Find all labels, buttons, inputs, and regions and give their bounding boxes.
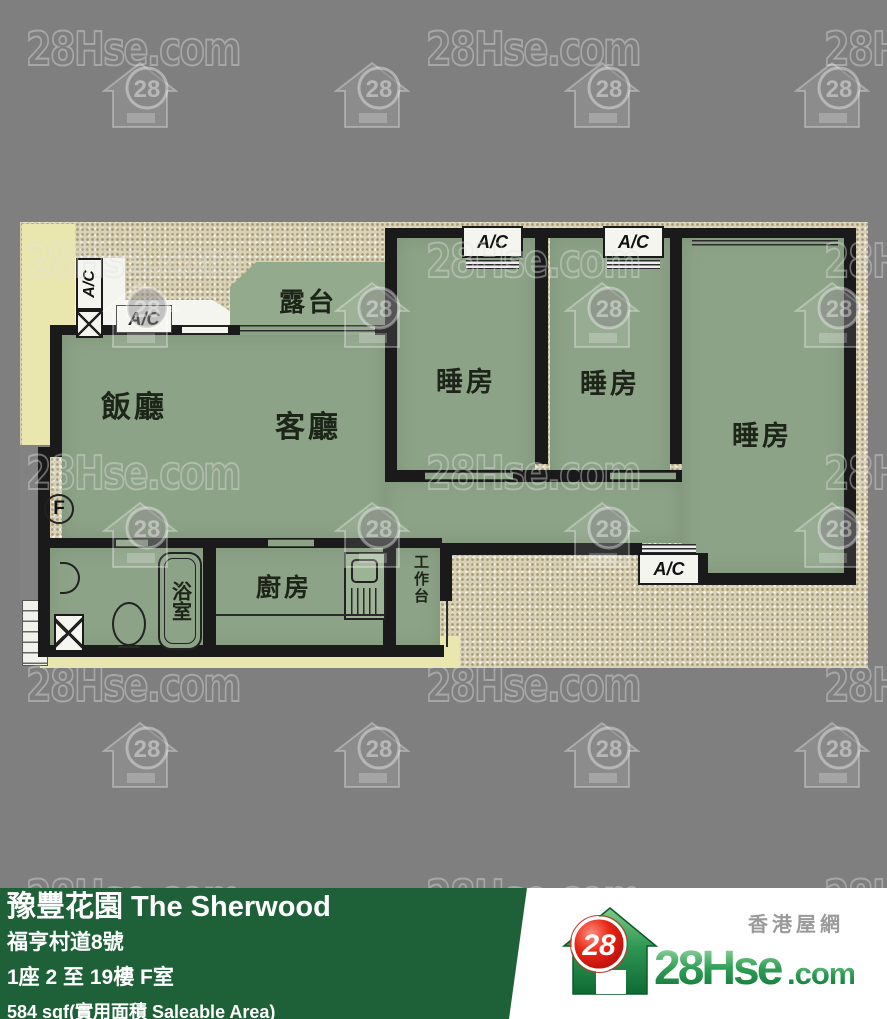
site-logo[interactable]: 香港屋網 28 <box>556 902 876 1012</box>
wall-segment <box>670 228 682 464</box>
logo-tagline: 香港屋網 <box>748 908 844 937</box>
watermark-house-icon: 28 <box>564 61 640 131</box>
watermark-text: 28Hse.com <box>824 22 887 76</box>
kitchen-label: 廚房 <box>238 568 330 604</box>
svg-text:28: 28 <box>366 76 393 103</box>
svg-text:28: 28 <box>134 736 161 763</box>
room-bedroom-2 <box>550 238 670 480</box>
floor-plan: A/C A/C A/C A/C A/C F 浴室 飯廳 客廳 睡房 睡房 睡房 … <box>20 222 868 668</box>
watermark-house-icon: 28 <box>794 721 870 791</box>
balcony-label: 露台 <box>260 282 356 319</box>
door-opening <box>268 539 314 547</box>
ac-unit-entry: A/C <box>76 258 103 310</box>
svg-text:28: 28 <box>596 76 623 103</box>
house-logo-icon: 28 <box>562 906 658 998</box>
ac-unit-entry-2: A/C <box>116 305 172 333</box>
kitchen-sink <box>344 552 386 620</box>
window <box>607 260 660 269</box>
bathroom-label: 浴室 <box>166 581 195 621</box>
kitchen-counter <box>216 614 384 616</box>
watermark-text: 28Hse.com <box>26 22 240 76</box>
living-room-label: 客廳 <box>252 402 364 446</box>
watermark-text: 28Hse.com <box>426 22 640 76</box>
pipe-duct-2 <box>54 614 84 652</box>
window <box>466 260 519 269</box>
svg-text:28: 28 <box>366 736 393 763</box>
door-opening <box>116 539 148 547</box>
room-bedroom-1 <box>397 238 535 480</box>
ac-unit-bedroom-2: A/C <box>603 226 664 258</box>
svg-text:28: 28 <box>826 76 853 103</box>
door-opening <box>425 472 513 480</box>
logo-badge-number: 28 <box>581 929 616 962</box>
boundary-line <box>446 601 448 647</box>
logo-wordmark: 28Hse .com <box>654 936 854 998</box>
bedroom-3-label: 睡房 <box>712 414 812 453</box>
pipe-duct <box>76 310 103 338</box>
watermark-house-icon: 28 <box>794 61 870 131</box>
bathtub: 浴室 <box>158 552 202 650</box>
logo-name-main: 28Hse <box>654 942 783 995</box>
window <box>182 325 230 335</box>
svg-text:28: 28 <box>596 736 623 763</box>
unit-marker: F <box>44 494 74 524</box>
bedroom-2-label: 睡房 <box>560 362 660 401</box>
room-bedroom-3 <box>682 238 844 573</box>
wall-segment <box>38 447 50 657</box>
watermark-house-icon: 28 <box>102 721 178 791</box>
worktop-label: 工作台 <box>410 554 431 605</box>
wall-segment <box>535 228 548 464</box>
watermark-house-icon: 28 <box>334 61 410 131</box>
window <box>692 240 838 246</box>
wall-segment <box>440 543 452 601</box>
wall-segment <box>203 538 216 648</box>
logo-name-suffix: .com <box>787 956 854 991</box>
bedroom-1-label: 睡房 <box>416 360 516 399</box>
window <box>642 544 696 553</box>
toilet <box>112 602 146 646</box>
wall-segment <box>452 543 642 555</box>
screenshot-root: A/C A/C A/C A/C A/C F 浴室 飯廳 客廳 睡房 睡房 睡房 … <box>0 0 887 1019</box>
svg-text:28: 28 <box>826 736 853 763</box>
wall-segment <box>228 325 240 335</box>
watermark-house-icon: 28 <box>334 721 410 791</box>
wall-segment <box>700 573 856 585</box>
watermark-house-icon: 28 <box>564 721 640 791</box>
watermark-house-icon: 28 <box>102 61 178 131</box>
wall-segment <box>844 238 856 585</box>
dining-room-label: 飯廳 <box>78 382 190 426</box>
wall-segment <box>385 228 397 480</box>
balcony-door <box>240 325 377 335</box>
toilet-base <box>118 646 140 648</box>
svg-text:28: 28 <box>134 76 161 103</box>
door-opening <box>610 472 676 480</box>
info-bar: 豫豐花園 The Sherwood 福亨村道8號 1座 2 至 19樓 F室 5… <box>0 888 887 1019</box>
ac-unit-bedroom-1: A/C <box>462 226 523 258</box>
ac-unit-bedroom-3: A/C <box>638 553 700 585</box>
wall-segment <box>50 325 62 457</box>
corridor <box>385 480 682 543</box>
